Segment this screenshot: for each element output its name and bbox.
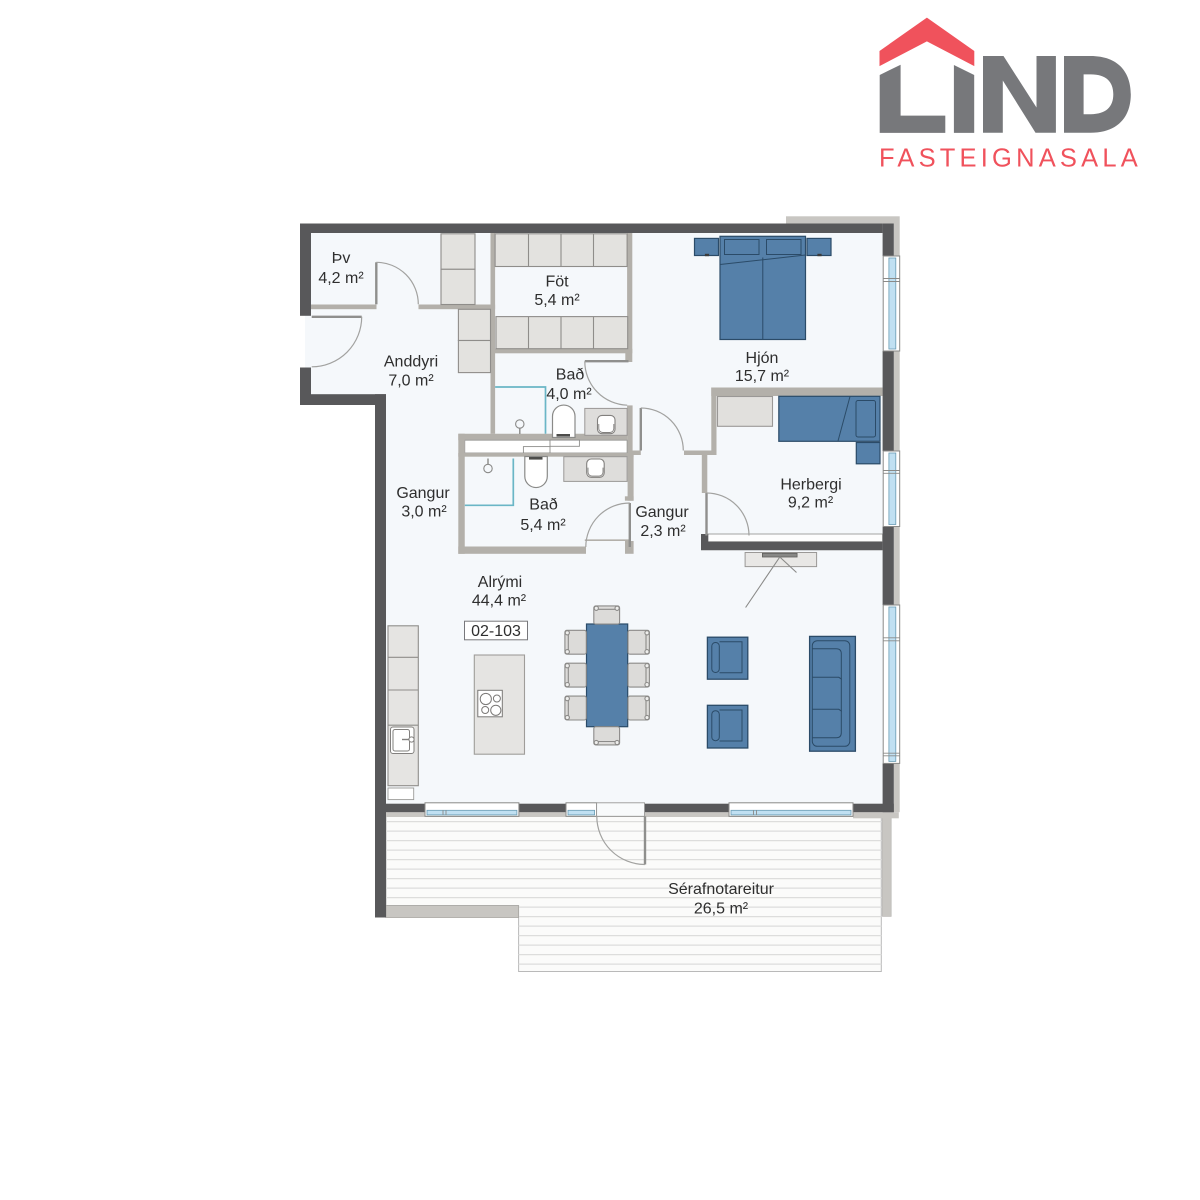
svg-text:02-103: 02-103 xyxy=(471,623,521,640)
svg-text:Anddyri: Anddyri xyxy=(384,354,438,371)
svg-text:Föt: Föt xyxy=(545,274,569,291)
svg-text:Gangur: Gangur xyxy=(635,504,689,521)
svg-text:9,2 m²: 9,2 m² xyxy=(788,495,834,512)
svg-text:Hjón: Hjón xyxy=(746,350,779,367)
svg-text:Sérafnotareitur: Sérafnotareitur xyxy=(668,881,775,898)
svg-text:15,7 m²: 15,7 m² xyxy=(735,368,790,385)
svg-text:Alrými: Alrými xyxy=(478,574,522,591)
svg-text:7,0 m²: 7,0 m² xyxy=(388,373,434,390)
svg-text:3,0 m²: 3,0 m² xyxy=(401,504,447,521)
svg-text:4,0 m²: 4,0 m² xyxy=(546,386,592,403)
svg-text:44,4 m²: 44,4 m² xyxy=(472,593,527,610)
svg-text:4,2 m²: 4,2 m² xyxy=(318,270,364,287)
svg-text:Þv: Þv xyxy=(332,250,351,267)
svg-text:5,4 m²: 5,4 m² xyxy=(520,517,566,534)
svg-text:FASTEIGNASALA: FASTEIGNASALA xyxy=(879,145,1142,173)
svg-text:5,4 m²: 5,4 m² xyxy=(534,292,580,309)
svg-text:26,5 m²: 26,5 m² xyxy=(694,901,749,918)
svg-text:Bað: Bað xyxy=(529,497,558,514)
svg-text:Gangur: Gangur xyxy=(396,485,450,502)
svg-text:Bað: Bað xyxy=(556,367,585,384)
svg-text:Herbergi: Herbergi xyxy=(780,477,841,494)
svg-text:2,3 m²: 2,3 m² xyxy=(640,523,686,540)
